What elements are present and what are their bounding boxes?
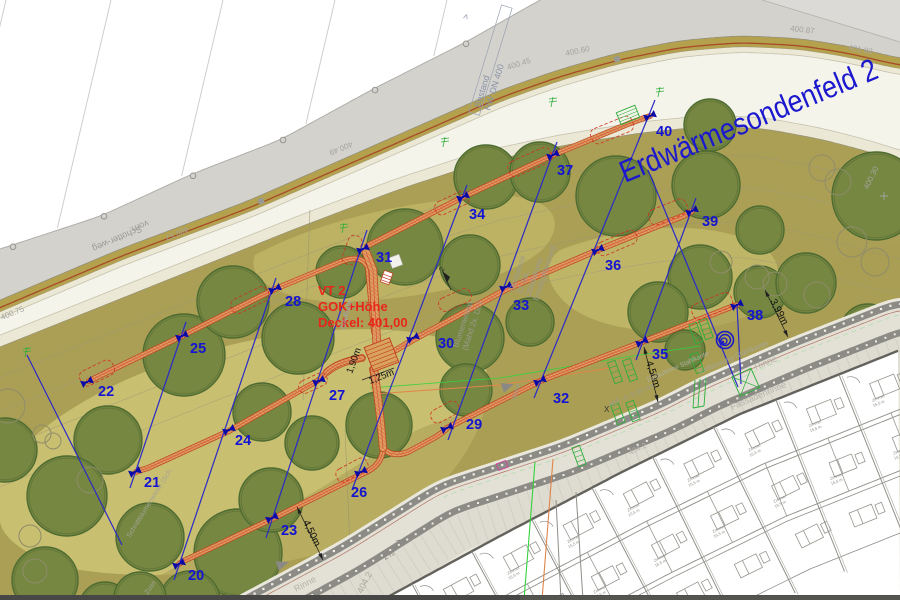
svg-text:36: 36 — [605, 258, 621, 274]
svg-text:28: 28 — [285, 294, 301, 310]
svg-text:34: 34 — [469, 207, 485, 223]
svg-text:38: 38 — [747, 308, 763, 324]
svg-text:Deckel: 401,00: Deckel: 401,00 — [318, 315, 408, 330]
svg-text:33: 33 — [513, 298, 529, 314]
svg-text:32: 32 — [553, 391, 569, 407]
svg-text:31: 31 — [376, 250, 392, 266]
svg-text:24: 24 — [235, 433, 251, 449]
svg-text:GOK+Höhe: GOK+Höhe — [318, 299, 388, 314]
svg-text:VT 2: VT 2 — [318, 283, 345, 298]
svg-text:26: 26 — [351, 485, 367, 501]
svg-text:39: 39 — [702, 214, 718, 230]
svg-text:22: 22 — [98, 384, 114, 400]
svg-text:25: 25 — [190, 341, 206, 357]
svg-text:29: 29 — [466, 417, 482, 433]
svg-text:27: 27 — [329, 388, 345, 404]
svg-text:37: 37 — [557, 163, 573, 179]
svg-text:20: 20 — [188, 568, 204, 584]
svg-text:23: 23 — [281, 523, 297, 539]
